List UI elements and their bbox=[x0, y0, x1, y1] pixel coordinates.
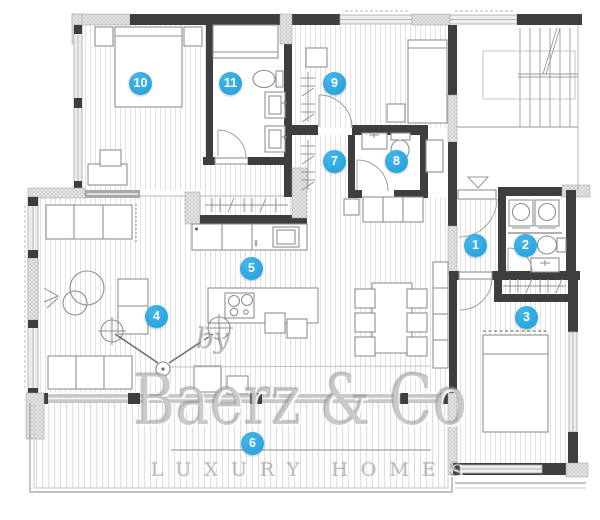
sofa-top bbox=[46, 205, 132, 239]
room-marker-7: 7 bbox=[323, 150, 346, 173]
desk-chair-10 bbox=[100, 150, 121, 166]
pier-kitchen-right bbox=[292, 168, 307, 218]
stool-1 bbox=[265, 313, 285, 333]
room-marker-8: 8 bbox=[385, 150, 408, 173]
pouf-2 bbox=[227, 376, 248, 394]
pier-kitchen-left bbox=[185, 192, 200, 224]
nightstand-9 bbox=[387, 104, 405, 122]
bed-9 bbox=[408, 40, 447, 123]
stool-2 bbox=[287, 319, 307, 338]
threshold-bath-11 bbox=[215, 158, 248, 164]
wall-kitchen-top bbox=[200, 215, 307, 224]
room-marker-5: 5 bbox=[240, 257, 263, 280]
room-marker-1: 1 bbox=[464, 234, 487, 257]
sofa-bottom bbox=[48, 356, 132, 389]
wall-9-7-left bbox=[292, 125, 318, 135]
door-11-swing bbox=[218, 130, 246, 158]
bed-3 bbox=[483, 335, 548, 432]
wall-bedroom3-right-top bbox=[568, 280, 578, 332]
toilet-2 bbox=[538, 236, 557, 254]
door-8-swing bbox=[357, 160, 388, 191]
room-marker-10: 10 bbox=[129, 72, 152, 95]
wall-bedroom3-left bbox=[449, 271, 457, 393]
wall-right-laundry bbox=[566, 190, 576, 280]
kitchen-counter bbox=[192, 224, 307, 250]
toilet-11 bbox=[253, 71, 275, 88]
laundry-2-fixtures bbox=[508, 200, 566, 272]
room-marker-3: 3 bbox=[515, 306, 538, 329]
floor-plan-image: .wall{fill:#3e3e3e;} .hat{fill:url(#hatc… bbox=[0, 0, 600, 520]
closet3-bottom-wall bbox=[494, 294, 572, 302]
wall-7-8 bbox=[348, 135, 355, 197]
wall-top-hatch-mid bbox=[412, 14, 450, 25]
wall-laundry-top bbox=[498, 187, 562, 196]
dining-chair bbox=[407, 313, 427, 332]
entry-bench bbox=[363, 197, 423, 222]
room-marker-9: 9 bbox=[323, 72, 346, 95]
room-marker-4: 4 bbox=[145, 305, 168, 328]
toilet-8-tank bbox=[391, 133, 410, 140]
room-marker-6: 6 bbox=[241, 432, 264, 455]
dining-chair bbox=[407, 337, 427, 356]
toilet-2-tank bbox=[557, 238, 566, 252]
shaft-niche bbox=[426, 140, 443, 172]
wall-1-2 bbox=[498, 196, 506, 273]
dining-chair bbox=[407, 289, 427, 308]
dining-table bbox=[372, 283, 412, 353]
watermark-divider bbox=[171, 449, 431, 451]
staircase bbox=[457, 25, 578, 190]
wall-living-top-hatch bbox=[28, 188, 85, 198]
floor-plan-drawing: .wall{fill:#3e3e3e;} .hat{fill:url(#hatc… bbox=[0, 0, 600, 520]
stairwell-void bbox=[483, 51, 575, 99]
wall-stairs-left bbox=[448, 25, 457, 95]
room-marker-11: 11 bbox=[219, 72, 242, 95]
floor-hall bbox=[205, 165, 292, 197]
wall-top-right bbox=[517, 14, 582, 25]
dining-chair bbox=[355, 337, 375, 356]
entry-cabinet-small bbox=[344, 199, 359, 215]
dining-chair bbox=[355, 289, 375, 308]
pouf-1 bbox=[194, 366, 221, 392]
balcony-planter bbox=[26, 393, 44, 439]
door-3-leaf bbox=[459, 272, 492, 279]
dining-chair bbox=[355, 313, 375, 332]
entrance-arrow-icon bbox=[468, 177, 488, 188]
room-marker-2: 2 bbox=[514, 234, 537, 257]
wall-10-11 bbox=[206, 25, 213, 163]
entrance-door-leaf bbox=[458, 190, 496, 199]
bed-10 bbox=[115, 27, 182, 107]
nightstand-10-left bbox=[95, 27, 113, 46]
tall-cabinet bbox=[433, 262, 448, 368]
bathtub-11 bbox=[213, 25, 278, 58]
cabinet-9 bbox=[306, 48, 327, 67]
nightstand-10-right bbox=[184, 27, 202, 46]
desk-10 bbox=[88, 164, 127, 185]
wall-top-dark bbox=[130, 14, 340, 25]
